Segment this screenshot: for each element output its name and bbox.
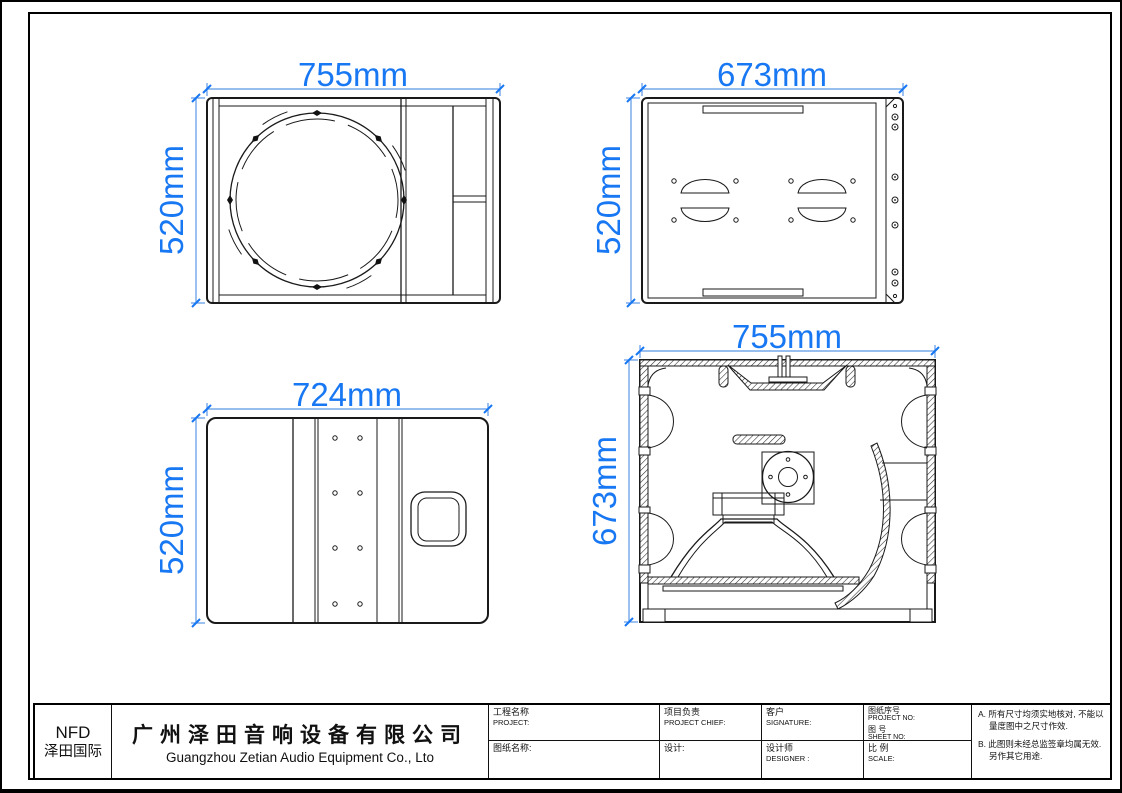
drawing-number-field: 图纸序号 PROJECT NO: 图 号 SHEET NO: — [864, 705, 972, 741]
front-height-dimension: 520mm — [153, 94, 205, 307]
section-width-dimension: 755mm — [636, 318, 939, 358]
scale-label-en: SCALE: — [868, 754, 967, 763]
notes-cell: A. 所有尺寸均须实地核对, 不能以量度图中之尺寸作效. B. 此图则未经总监签… — [972, 705, 1110, 778]
design-label: 设计: — [664, 743, 757, 754]
side-height-dimension: 520mm — [153, 414, 205, 627]
section-height-dimension: 673mm — [586, 356, 638, 626]
bottom-vent-slot — [703, 289, 803, 296]
side-screws — [333, 436, 362, 606]
designer-label-en: DESIGNER : — [766, 754, 859, 763]
side-width-dimension: 724mm — [203, 376, 492, 416]
internal-brace — [733, 435, 785, 444]
top-vent-slot — [703, 106, 803, 113]
drawing-no-label-cn: 图纸序号 — [868, 706, 967, 715]
brand-code: NFD — [56, 722, 91, 743]
drawing-name-field: 图纸名称: — [489, 741, 660, 778]
project-chief-field: 项目负责 PROJECT CHIEF: — [660, 705, 762, 741]
front-width-dimension: 755mm — [203, 56, 504, 96]
front-height-label: 520mm — [153, 145, 190, 255]
rear-height-dimension: 520mm — [590, 94, 640, 307]
section-height-label: 673mm — [586, 436, 623, 546]
side-handle-recess — [411, 492, 466, 546]
brand-name: 泽田国际 — [44, 743, 102, 761]
side-view — [207, 418, 488, 623]
project-label-cn: 工程名称 — [493, 707, 655, 718]
driver-magnet — [762, 452, 814, 505]
front-view — [207, 98, 500, 303]
sheet-no-label-en: SHEET NO: — [868, 734, 967, 741]
woofer-circle — [224, 107, 410, 293]
drawing-canvas: 755mm 520mm — [0, 0, 1122, 793]
scale-field: 比 例 SCALE: — [864, 741, 972, 778]
customer-label-en: SIGNATURE: — [766, 718, 859, 727]
company-cell: 广州泽田音响设备有限公司 Guangzhou Zetian Audio Equi… — [112, 705, 489, 778]
project-field: 工程名称 PROJECT: — [489, 705, 660, 741]
title-block: NFD 泽田国际 广州泽田音响设备有限公司 Guangzhou Zetian A… — [33, 703, 1112, 780]
designer-label-cn: 设计师 — [766, 743, 859, 754]
rear-width-label: 673mm — [717, 56, 827, 93]
left-wall — [639, 366, 674, 609]
section-width-label: 755mm — [732, 318, 842, 355]
front-width-label: 755mm — [298, 56, 408, 93]
scale-label-cn: 比 例 — [868, 743, 967, 754]
rear-height-label: 520mm — [590, 145, 627, 255]
customer-field: 客户 SIGNATURE: — [762, 705, 864, 741]
company-name-en: Guangzhou Zetian Audio Equipment Co., Lt… — [166, 750, 434, 765]
sheet-no-label-cn: 图 号 — [868, 725, 967, 734]
chief-label-cn: 项目负责 — [664, 707, 757, 718]
rear-rail — [886, 98, 898, 303]
customer-label-cn: 客户 — [766, 707, 859, 718]
handle-screws — [672, 179, 855, 222]
rear-width-dimension: 673mm — [638, 56, 907, 96]
drawing-name-label: 图纸名称: — [493, 743, 655, 754]
side-height-label: 520mm — [153, 465, 190, 575]
company-name-cn: 广州泽田音响设备有限公司 — [132, 719, 468, 749]
rear-view — [642, 98, 903, 303]
project-label-en: PROJECT: — [493, 718, 655, 727]
brand-cell: NFD 泽田国际 — [35, 705, 112, 778]
drawing-no-label-en: PROJECT NO: — [868, 715, 967, 723]
note-b: B. 此图则未经总监签章均属无效. 另作其它用途. — [978, 739, 1104, 763]
section-view — [639, 356, 936, 622]
mounting-bolts — [227, 110, 407, 290]
side-width-label: 724mm — [292, 376, 402, 413]
note-a: A. 所有尺寸均须实地核对, 不能以量度图中之尺寸作效. — [978, 709, 1104, 733]
chief-label-en: PROJECT CHIEF: — [664, 718, 757, 727]
drawing-sheet: 755mm 520mm — [0, 0, 1122, 793]
rail-screw-dots — [894, 116, 896, 284]
design-field: 设计: — [660, 741, 762, 778]
right-wall — [902, 366, 937, 609]
woofer-section — [671, 493, 834, 577]
rail-screws — [892, 104, 898, 297]
bottom-baffle — [648, 577, 859, 584]
designer-field: 设计师 DESIGNER : — [762, 741, 864, 778]
rear-handles — [672, 179, 855, 222]
